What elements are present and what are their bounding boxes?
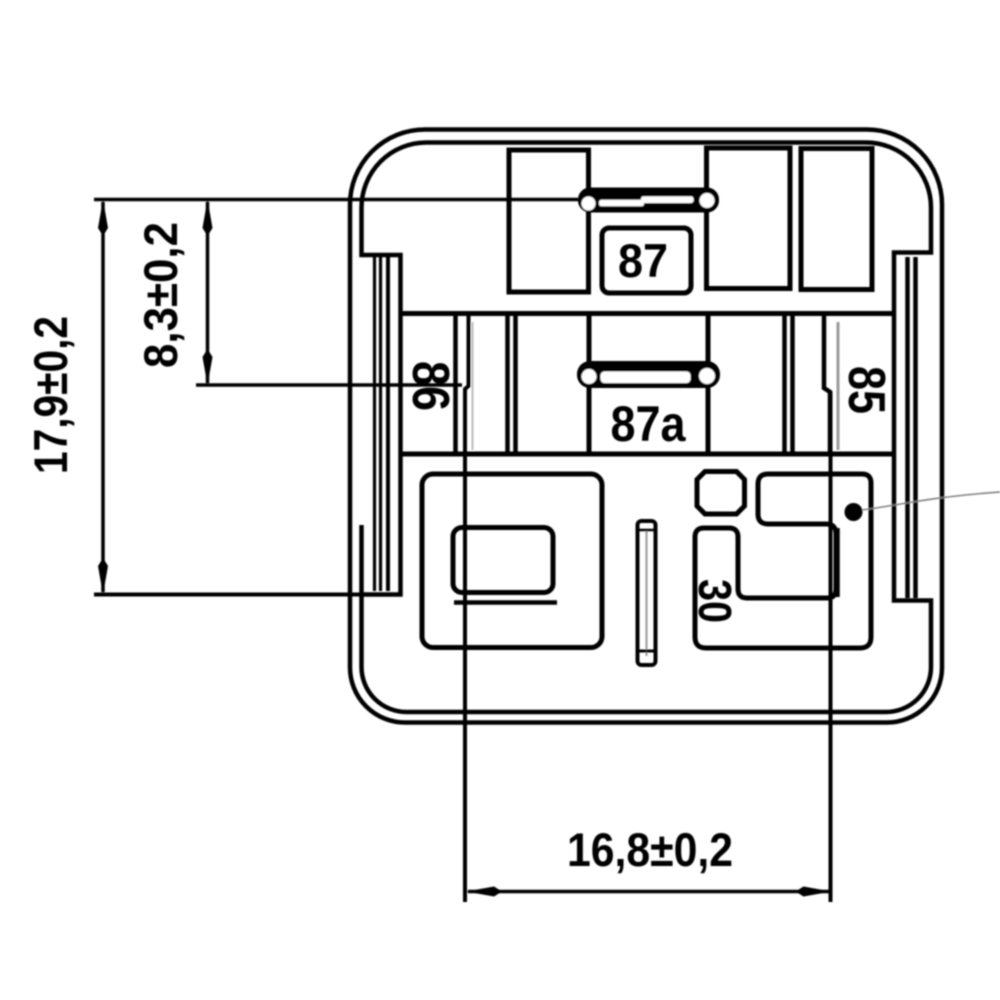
svg-text:16,8±0,2: 16,8±0,2 [567,823,733,876]
svg-text:87: 87 [618,234,668,287]
svg-text:87a: 87a [611,396,687,452]
svg-text:8,3±0,2: 8,3±0,2 [134,222,187,368]
svg-text:85: 85 [837,366,895,414]
svg-text:30: 30 [689,579,741,623]
svg-text:17,9±0,2: 17,9±0,2 [24,316,77,474]
